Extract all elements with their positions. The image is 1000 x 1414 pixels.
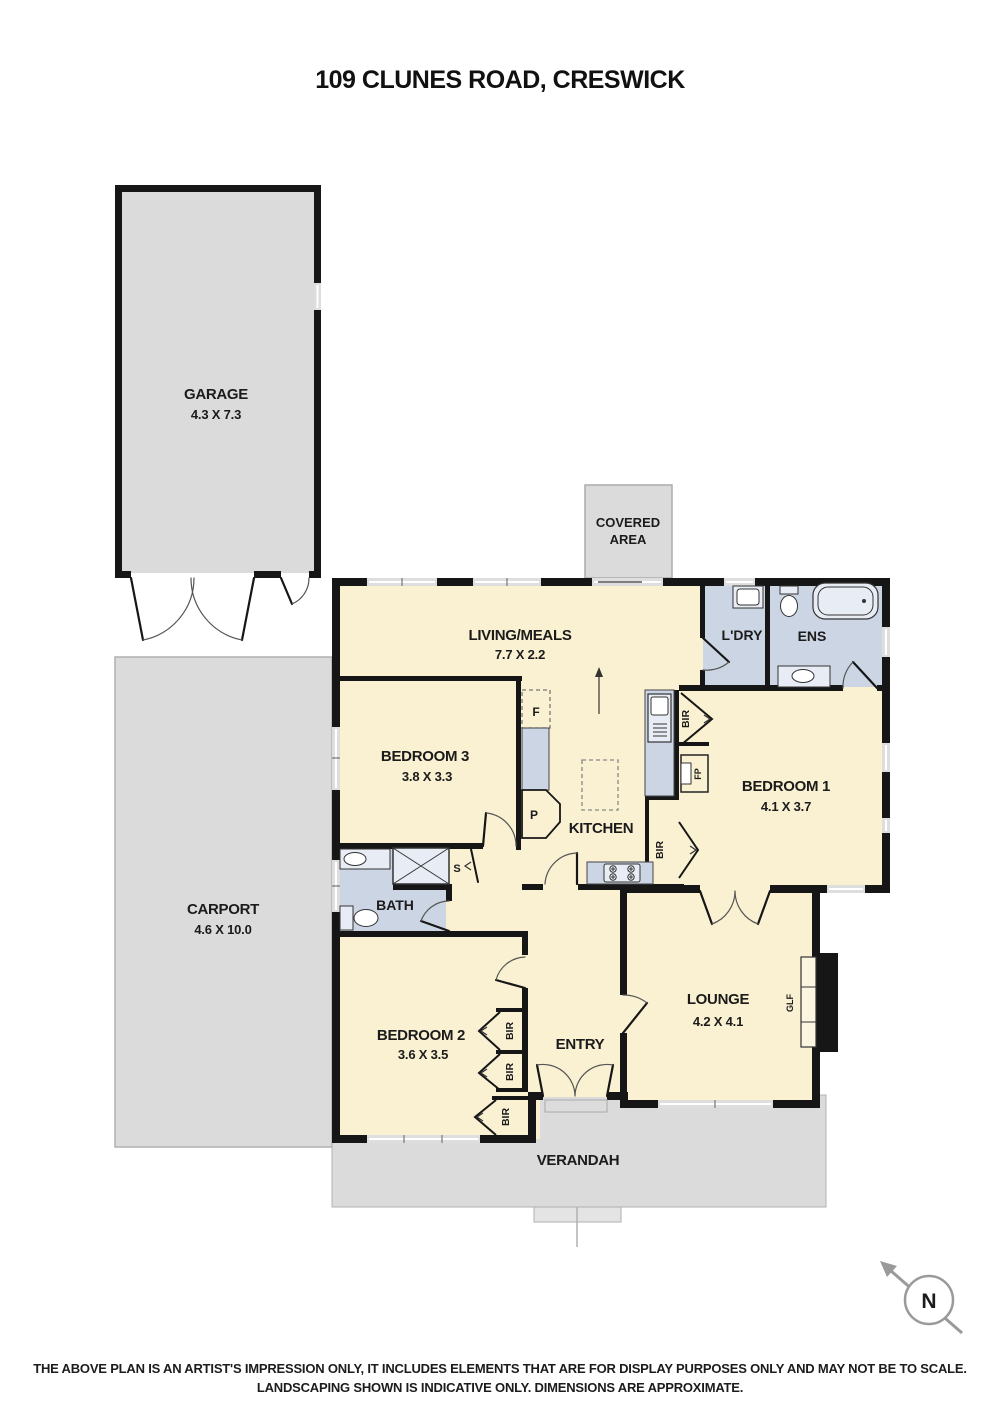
robe-label: BIR: [680, 710, 692, 729]
cooktop: [604, 864, 640, 882]
entry-label: ENTRY: [556, 1036, 605, 1053]
carport: CARPORT 4.6 X 10.0: [115, 657, 332, 1147]
cooktop-bench: [587, 862, 653, 884]
oven-door: [651, 697, 668, 715]
laundry-trough-bowl: [737, 589, 759, 605]
glf-hearth: [801, 957, 816, 1047]
garage-door-leaf: [281, 578, 292, 604]
robe-label: BIR: [504, 1063, 516, 1082]
ensuite-label: ENS: [798, 628, 827, 644]
ensuite-toilet-bowl: [781, 596, 798, 617]
garage-door-leaf: [131, 578, 143, 640]
north-compass: N: [880, 1261, 962, 1333]
ensuite-basin: [792, 670, 814, 683]
bedroom3-dims: 3.8 X 3.3: [402, 769, 452, 784]
bedroom3-label: BEDROOM 3: [381, 748, 469, 765]
bathtub-drain: [862, 599, 866, 603]
bedroom1-label: BEDROOM 1: [742, 778, 830, 795]
disclaimer: THE ABOVE PLAN IS AN ARTIST'S IMPRESSION…: [20, 1360, 980, 1398]
fridge-label: F: [532, 705, 539, 719]
compass-north-label: N: [921, 1290, 936, 1313]
floorplan-drawing: COVERED AREA CARPORT 4.6 X 10.0 VERANDAH: [0, 0, 1000, 1414]
robe-label: BIR: [654, 841, 666, 860]
glf-chimney: [816, 953, 838, 1052]
bath-toilet-bowl: [354, 910, 378, 927]
store-label: S: [453, 863, 460, 875]
ensuite-toilet-cistern: [780, 586, 798, 594]
fireplace-insert: [681, 763, 691, 784]
lounge-dims: 4.2 X 4.1: [693, 1014, 743, 1029]
glf-label: GLF: [785, 994, 795, 1012]
fireplace-label: FP: [693, 768, 703, 780]
covered-area: COVERED AREA: [585, 485, 672, 578]
carport-label: CARPORT: [187, 901, 259, 918]
laundry-label: L'DRY: [722, 627, 764, 643]
covered-area-label-1: COVERED: [596, 515, 660, 530]
garage: GARAGE 4.3 X 7.3: [115, 185, 321, 640]
covered-area-label-2: AREA: [610, 532, 647, 547]
kitchen-cupboard: [522, 728, 549, 790]
bath-basin: [344, 853, 366, 866]
laundry-fixtures: [733, 586, 763, 608]
living-dims: 7.7 X 2.2: [495, 647, 545, 662]
disclaimer-line-2: LANDSCAPING SHOWN IS INDICATIVE ONLY. DI…: [20, 1379, 980, 1398]
garage-dims: 4.3 X 7.3: [191, 407, 241, 422]
page-title: 109 CLUNES ROAD, CRESWICK: [0, 66, 1000, 95]
bedroom1-fireplace: FP: [681, 755, 708, 792]
robe-label: BIR: [500, 1108, 512, 1127]
kitchen-label: KITCHEN: [569, 820, 634, 837]
lounge-label: LOUNGE: [687, 991, 750, 1008]
garage-floor: [120, 190, 316, 573]
garage-door-swing: [143, 578, 194, 640]
carport-dims: 4.6 X 10.0: [194, 922, 251, 937]
floorplan-page: 109 CLUNES ROAD, CRESWICK COVERED AREA C…: [0, 0, 1000, 1414]
garage-doors: [131, 578, 309, 640]
oven: [648, 694, 671, 742]
pantry-label: P: [530, 808, 538, 822]
disclaimer-line-1: THE ABOVE PLAN IS AN ARTIST'S IMPRESSION…: [20, 1360, 980, 1379]
garage-door-swing: [191, 578, 242, 640]
bedroom2-dims: 3.6 X 3.5: [398, 1047, 448, 1062]
garage-label: GARAGE: [184, 386, 248, 403]
living-label: LIVING/MEALS: [468, 627, 571, 644]
verandah-label: VERANDAH: [537, 1152, 620, 1169]
garage-door-swing: [292, 578, 309, 604]
bedroom2-label: BEDROOM 2: [377, 1027, 465, 1044]
garage-door-leaf: [242, 578, 254, 640]
entry-threshold: [545, 1100, 607, 1112]
bedroom1-dims: 4.1 X 3.7: [761, 799, 811, 814]
bath-toilet-cistern: [340, 906, 353, 930]
bath-label: BATH: [376, 897, 414, 913]
robe-label: BIR: [504, 1022, 516, 1041]
